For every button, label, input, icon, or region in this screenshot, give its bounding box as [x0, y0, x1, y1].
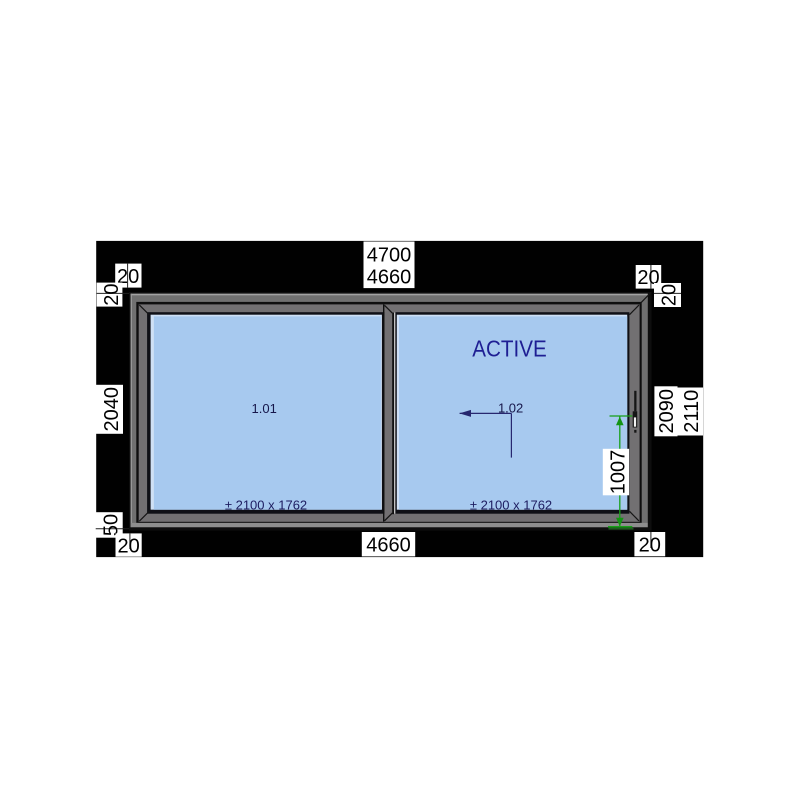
svg-text:4660: 4660 [367, 266, 412, 288]
svg-text:1.01: 1.01 [252, 401, 277, 416]
svg-text:20: 20 [101, 283, 123, 305]
svg-text:2040: 2040 [101, 387, 123, 432]
svg-text:± 2100 x 1762: ± 2100 x 1762 [225, 498, 307, 513]
svg-text:20: 20 [117, 536, 139, 558]
svg-text:20: 20 [639, 535, 661, 557]
svg-text:50: 50 [101, 514, 123, 536]
svg-text:2110: 2110 [681, 390, 703, 433]
svg-text:4660: 4660 [366, 535, 411, 557]
svg-text:± 2100 x 1762: ± 2100 x 1762 [470, 498, 552, 513]
svg-text:ACTIVE: ACTIVE [472, 335, 547, 361]
svg-text:20: 20 [658, 284, 680, 306]
svg-text:4700: 4700 [367, 244, 412, 266]
svg-text:1007: 1007 [608, 450, 630, 495]
svg-text:2090: 2090 [656, 389, 678, 434]
